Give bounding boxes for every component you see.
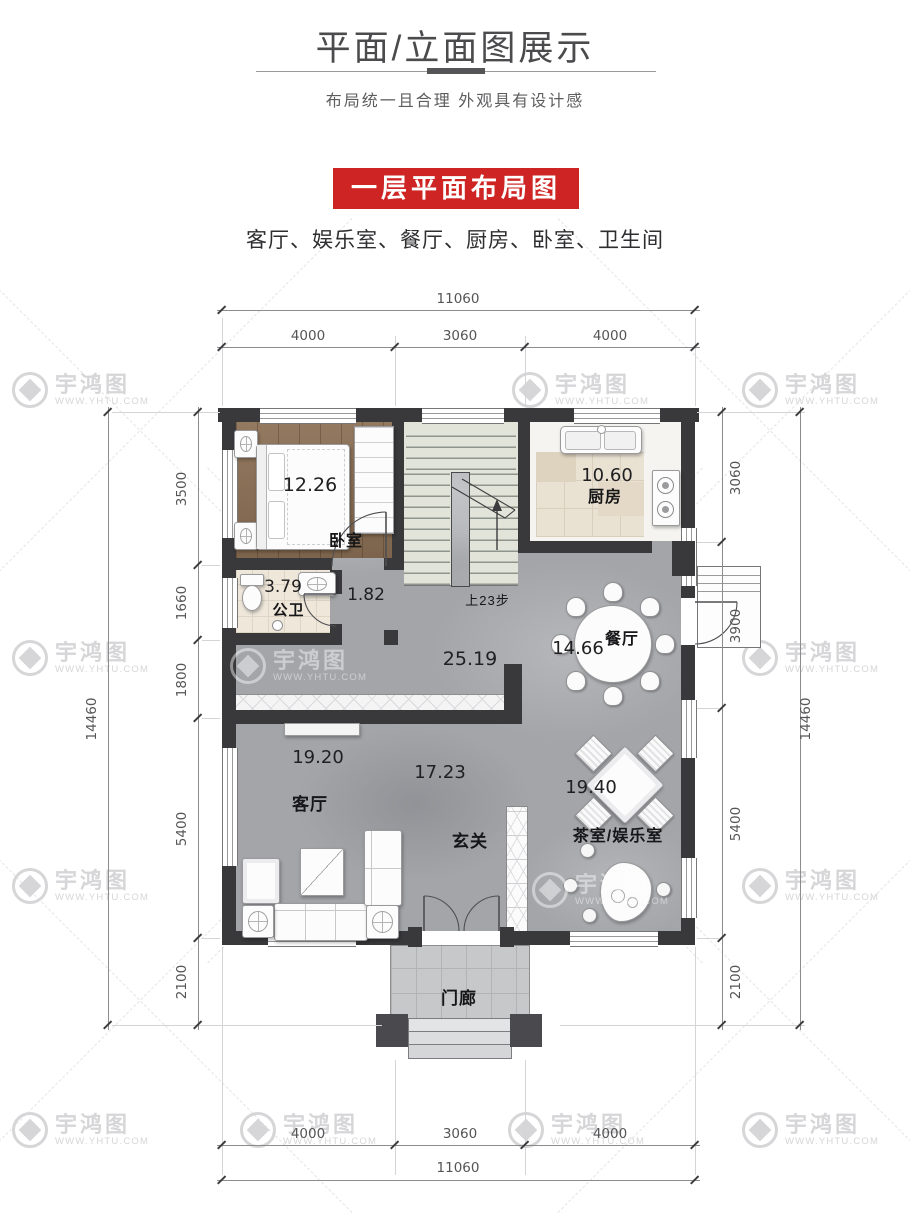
dining-label: 餐厅 [592, 625, 652, 649]
dim-top-seg: 4000 [278, 328, 338, 344]
dim-bottom-seg: 3060 [430, 1126, 490, 1142]
tea-room-label: 茶室/娱乐室 [548, 822, 688, 846]
dim-left-seg: 2100 [174, 952, 190, 1012]
hall-area: 25.19 [440, 648, 500, 670]
bathroom-area: 3.79 [258, 577, 308, 597]
dim-top-seg: 4000 [580, 328, 640, 344]
dim-right-seg: 5400 [728, 794, 744, 854]
dim-right-seg: 3060 [728, 448, 744, 508]
floor-plan-page: 宇鸿图WWW.YHTU.COM 宇鸿图WWW.YHTU.COM 宇鸿图WWW.Y… [0, 0, 910, 1217]
stairs-note: 上23步 [455, 590, 520, 609]
living-area-left: 19.20 [288, 747, 348, 768]
corridor-area: 1.82 [341, 585, 391, 605]
living-area-right: 17.23 [410, 762, 470, 783]
stairs-arrow-head [492, 499, 502, 511]
entry-door-arc [424, 896, 459, 931]
foyer-label: 玄关 [440, 827, 500, 852]
stairs-direction [452, 479, 515, 550]
dim-left-seg: 1800 [174, 650, 190, 710]
dim-right-total: 14460 [798, 689, 814, 749]
dim-top-seg: 3060 [430, 328, 490, 344]
bathroom-label: 公卫 [261, 599, 316, 620]
dim-left-seg: 1660 [174, 573, 190, 633]
entry-door-arc [464, 896, 499, 931]
dim-bottom-seg: 4000 [580, 1126, 640, 1142]
dim-bottom-seg: 4000 [278, 1126, 338, 1142]
bedroom-area: 12.26 [280, 474, 340, 496]
living-label: 客厅 [280, 790, 340, 815]
kitchen-label: 厨房 [575, 483, 635, 507]
dim-left-seg: 5400 [174, 799, 190, 859]
dim-left-total: 14460 [84, 689, 100, 749]
porch-label: 门廊 [429, 984, 489, 1009]
tea-room-area: 19.40 [561, 777, 621, 798]
dim-right-seg: 3900 [728, 596, 744, 656]
dim-right-seg: 2100 [728, 952, 744, 1012]
dim-left-seg: 3500 [174, 459, 190, 519]
dim-bottom-total: 11060 [428, 1160, 488, 1176]
bedroom-label: 卧室 [316, 527, 376, 551]
dim-top-total: 11060 [428, 291, 488, 307]
